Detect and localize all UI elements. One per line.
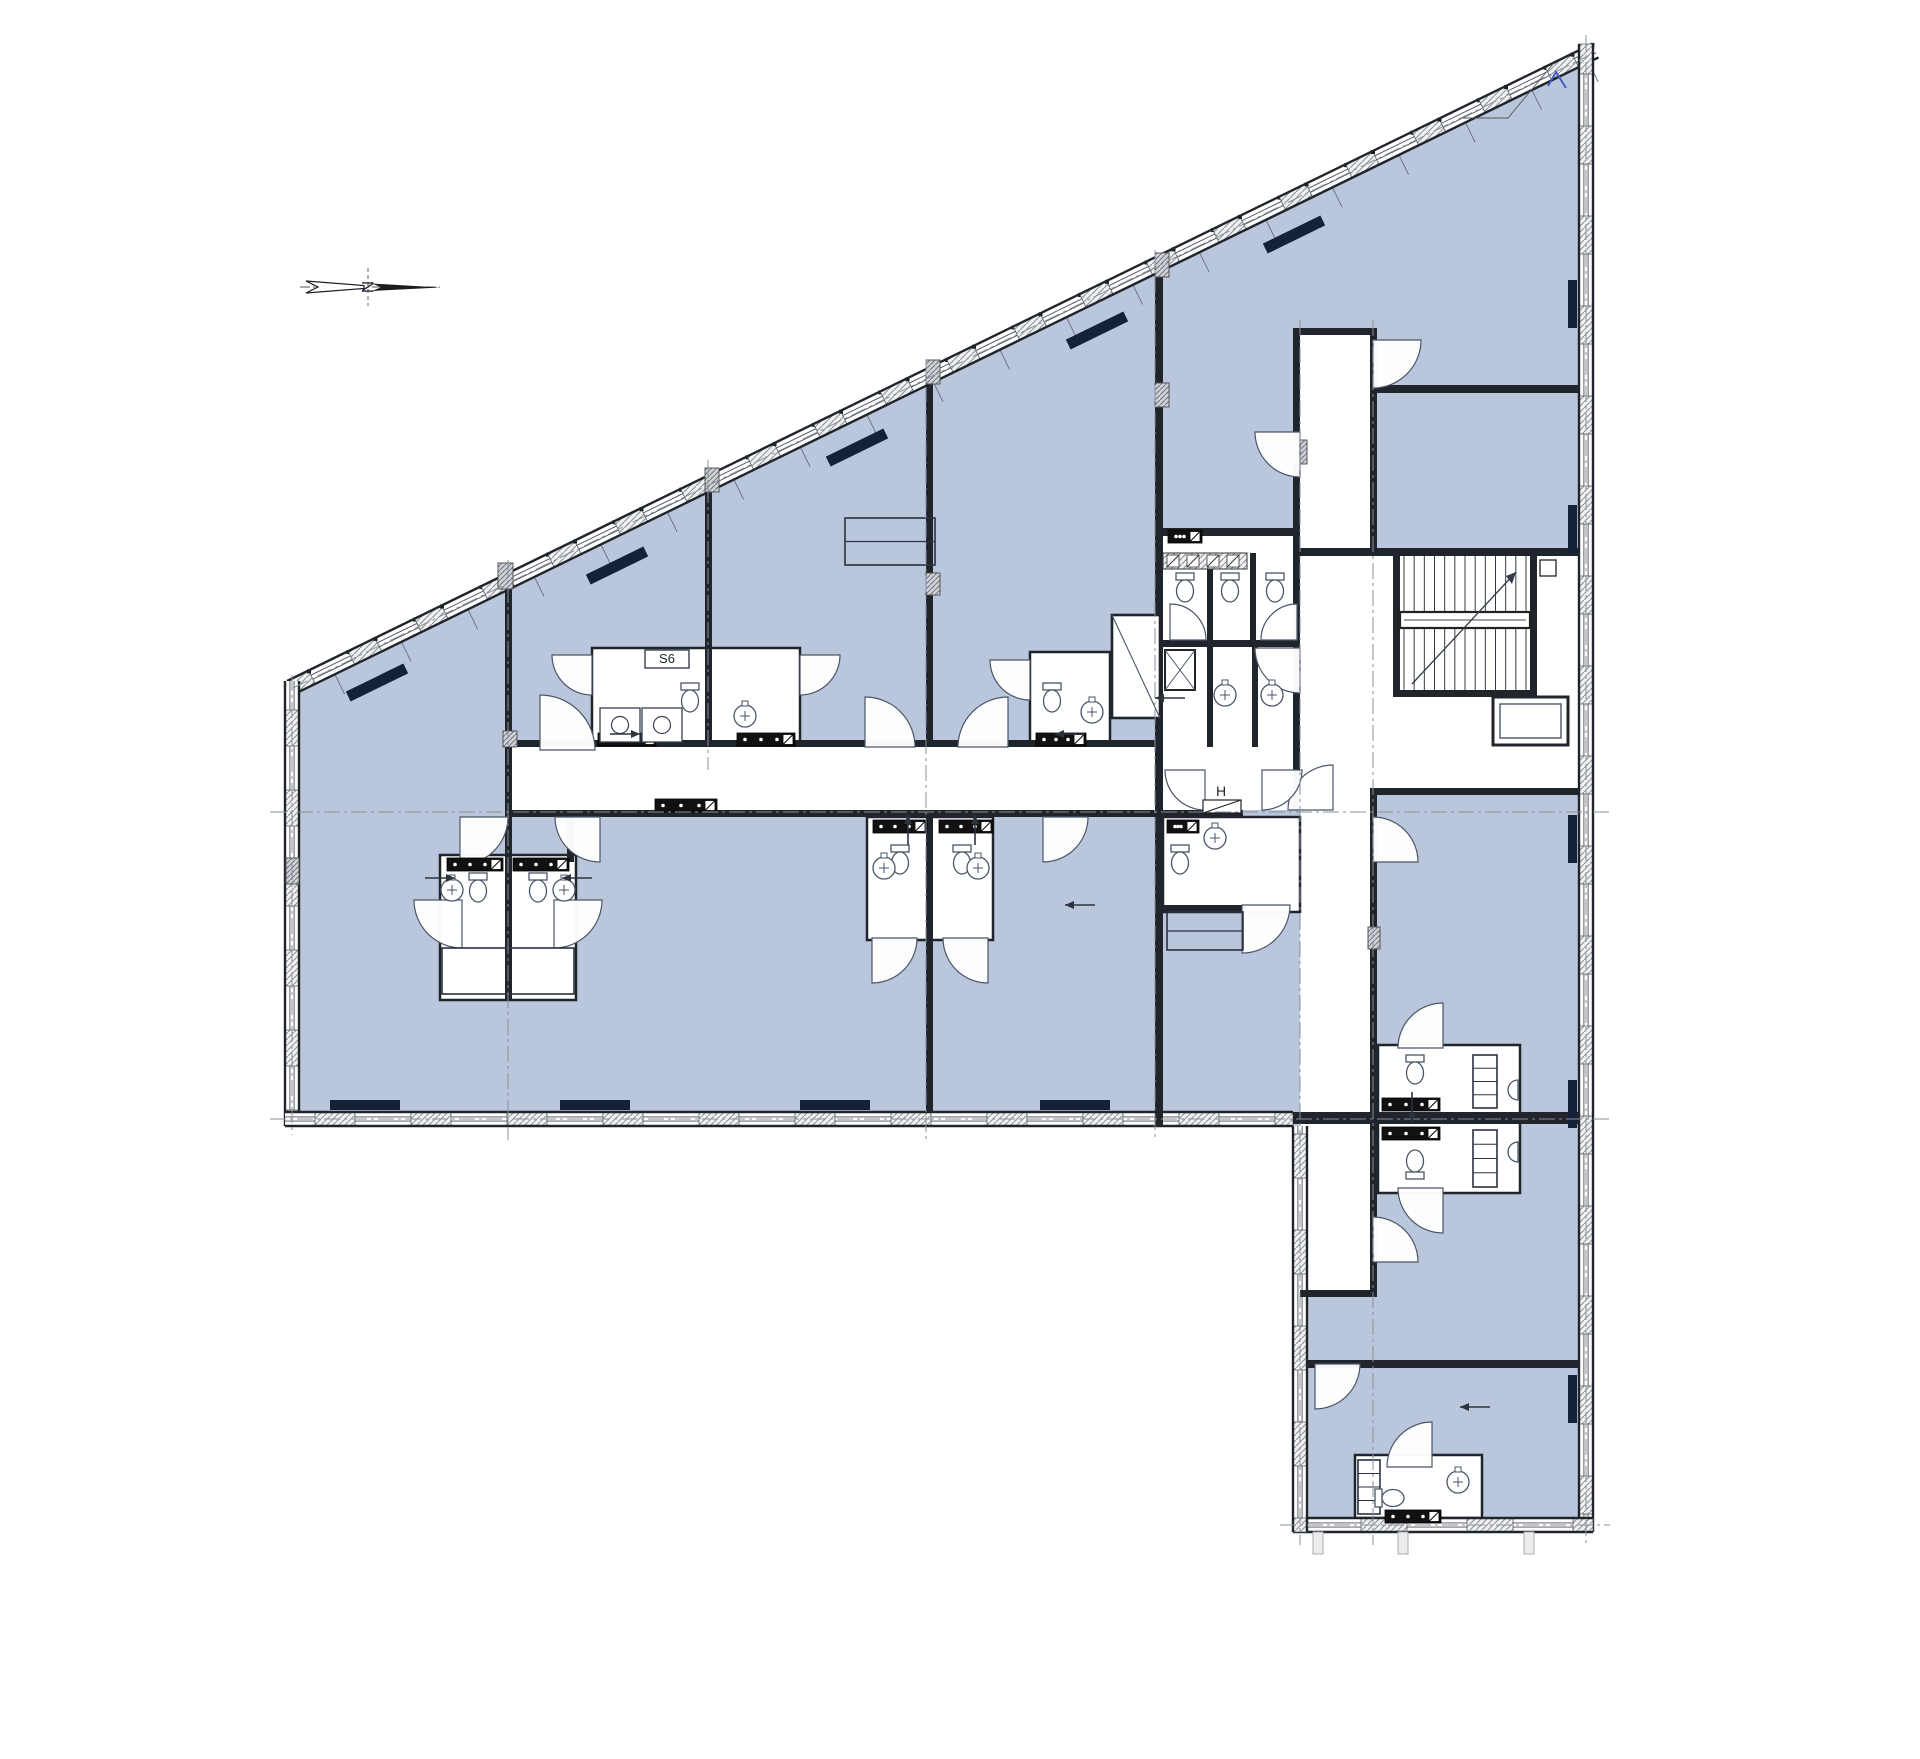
kitchen-unit [642, 708, 682, 742]
unit-label: S6 [659, 651, 675, 666]
toilet-icon [1406, 1150, 1424, 1179]
toilet-icon [1171, 845, 1189, 874]
vent-dot [1179, 825, 1183, 829]
radiator [560, 1100, 630, 1110]
toilet-icon [469, 873, 487, 902]
wall [1293, 1112, 1579, 1124]
vent-dot [549, 863, 553, 867]
vent-dot [1178, 535, 1182, 539]
toilet-icon [1375, 1489, 1404, 1507]
column [1368, 927, 1380, 949]
column [926, 360, 940, 384]
vent-dot [879, 825, 883, 829]
radiator [1040, 1100, 1110, 1110]
vent-dot [1042, 738, 1046, 742]
compass-north: N [358, 281, 377, 293]
radiator [1568, 815, 1577, 863]
wall [1163, 905, 1245, 912]
wall [926, 378, 933, 747]
vent-dot [453, 863, 457, 867]
wall [1393, 549, 1537, 556]
corridor-label: H [1216, 783, 1226, 799]
toilet-icon [1266, 573, 1284, 602]
vent-dot [1388, 1132, 1392, 1136]
vent-dot [893, 825, 897, 829]
vent-dot [1182, 535, 1186, 539]
sink-tap [742, 701, 748, 706]
floor-plan-svg: S6HN [0, 0, 1920, 1759]
vent-dot [697, 804, 701, 808]
sink-tap [975, 853, 981, 858]
radiator [1568, 505, 1577, 553]
vent-dot [1174, 535, 1178, 539]
column [498, 563, 513, 589]
vent-dot [1404, 1132, 1408, 1136]
vent-dot [468, 863, 472, 867]
column [503, 731, 517, 747]
wall [1250, 553, 1256, 640]
sink-tap [1212, 823, 1218, 828]
toilet-icon [1406, 1055, 1424, 1084]
toilet-icon [1221, 573, 1239, 602]
vent-dot [483, 863, 487, 867]
column [1155, 253, 1169, 277]
corridor [1300, 335, 1370, 556]
vent-dot [959, 825, 963, 829]
wall [1293, 328, 1300, 810]
vent-dot [534, 863, 538, 867]
wall [512, 810, 1155, 817]
vent-dot [1420, 1132, 1424, 1136]
ghost-stub [1524, 1532, 1534, 1554]
vent-dot [1391, 1515, 1395, 1519]
toilet-icon [1043, 683, 1061, 712]
ghost-stub [1313, 1532, 1323, 1554]
sink-tap [1455, 1467, 1461, 1472]
corridor [1300, 556, 1579, 788]
toilet-icon [681, 683, 699, 712]
sink-tap [1089, 697, 1095, 702]
vent-dot [661, 804, 665, 808]
radiator [330, 1100, 400, 1110]
radiator [1568, 280, 1577, 328]
floor-plan-page: S6HN [0, 0, 1920, 1759]
wall [1207, 647, 1213, 747]
ghost-stub [1398, 1532, 1408, 1554]
wall [1155, 747, 1163, 810]
column [705, 468, 719, 492]
stair-duct [1540, 560, 1556, 576]
vent-dot [759, 738, 763, 742]
sink-tap [1269, 680, 1275, 685]
radiator [1568, 1080, 1577, 1128]
radiator [800, 1100, 870, 1110]
wall [1163, 640, 1300, 647]
vent-dot [1054, 738, 1058, 742]
wall [1293, 328, 1377, 335]
wall [1377, 385, 1579, 393]
vent-dot [1406, 1515, 1410, 1519]
vent-dot [1066, 738, 1070, 742]
column [1155, 383, 1169, 407]
vent-dot [775, 738, 779, 742]
vent-dot [519, 863, 523, 867]
sink-tap [1222, 680, 1228, 685]
radiator [1568, 1375, 1577, 1423]
vent-dot [743, 738, 747, 742]
vent-dot [679, 804, 683, 808]
sink-tap [881, 853, 887, 858]
toilet-icon [529, 873, 547, 902]
toilet-icon [1176, 573, 1194, 602]
vent-dot [1388, 1103, 1392, 1107]
kitchen-unit [600, 708, 640, 742]
wall [926, 817, 933, 1112]
wall [1155, 810, 1163, 1126]
bath-box [1030, 652, 1110, 745]
column [926, 573, 940, 595]
vent-dot [1420, 1103, 1424, 1107]
wall [1377, 788, 1579, 795]
compass-needle [372, 284, 440, 292]
vent-dot [1421, 1515, 1425, 1519]
vent-dot [1404, 1103, 1408, 1107]
wall [1300, 1290, 1377, 1297]
vent-dot [945, 825, 949, 829]
